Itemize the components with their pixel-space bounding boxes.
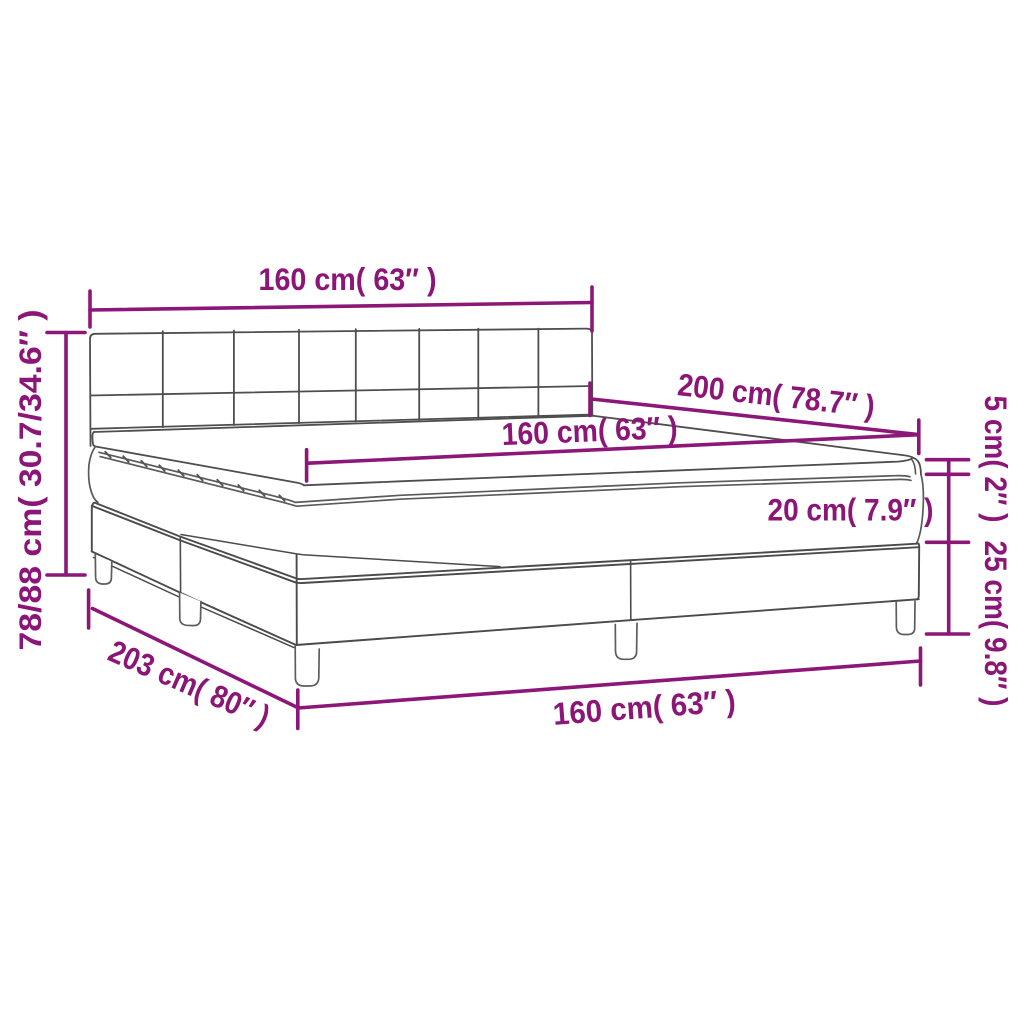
- svg-text:25 cm( 9.8″ ): 25 cm( 9.8″ ): [978, 541, 1014, 707]
- svg-text:5 cm( 2″ ): 5 cm( 2″ ): [978, 396, 1014, 523]
- svg-text:160 cm( 63″ ): 160 cm( 63″ ): [501, 409, 678, 452]
- svg-text:20 cm( 7.9″ ): 20 cm( 7.9″ ): [768, 492, 934, 528]
- svg-text:160 cm( 63″ ): 160 cm( 63″ ): [259, 261, 437, 297]
- svg-text:78/88 cm( 30.7/34.6″ ): 78/88 cm( 30.7/34.6″ ): [12, 310, 48, 651]
